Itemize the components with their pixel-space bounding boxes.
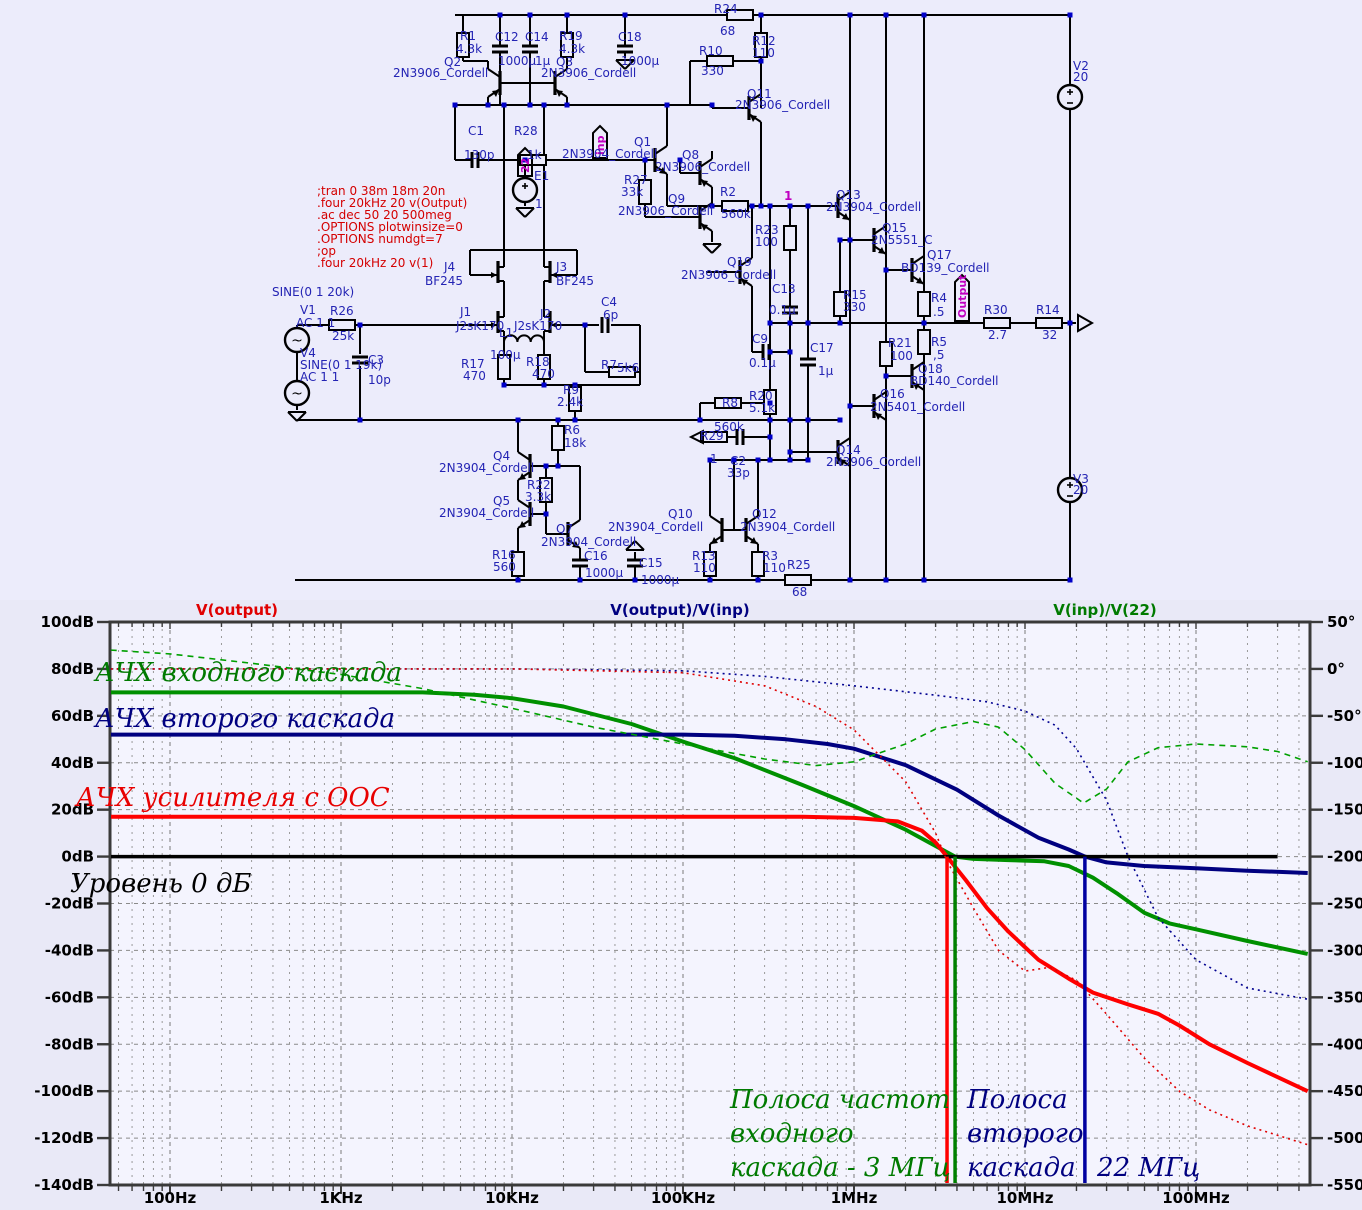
component-label: 2.7 — [988, 329, 1007, 341]
component-label: C16 — [584, 550, 608, 562]
component-label: 2N3904_Cordell — [439, 462, 534, 474]
component-label: J4 — [444, 261, 455, 273]
component-label: 20 — [1073, 484, 1088, 496]
component-label: 32 — [1042, 329, 1057, 341]
component-label: R5 — [931, 336, 947, 348]
component-label: R7 — [601, 359, 617, 371]
component-label: C4 — [601, 296, 617, 308]
component-label: R14 — [1036, 304, 1060, 316]
component-label: 2N3906_Cordell — [655, 161, 750, 173]
component-label: 100 — [890, 350, 913, 362]
component-label: C14 — [525, 31, 549, 43]
component-label: 1000µ — [498, 55, 536, 67]
component-label: AC 1 1 — [296, 317, 335, 329]
component-label: 5k6 — [617, 362, 639, 374]
component-label: 560 — [493, 561, 516, 573]
component-label: Q17 — [927, 249, 952, 261]
component-label: BF245 — [425, 275, 463, 287]
component-label: 2N3904_Cordell — [541, 536, 636, 548]
component-label: C15 — [639, 557, 663, 569]
component-label: R28 — [514, 125, 538, 137]
component-label: R25 — [787, 559, 811, 571]
component-label: 68 — [792, 586, 807, 598]
component-label: R26 — [330, 305, 354, 317]
component-label: Q10 — [668, 508, 693, 520]
component-label: 2N3904_Cordell — [826, 201, 921, 213]
component-label: C17 — [810, 342, 834, 354]
component-label: 2N5401_Cordell — [870, 401, 965, 413]
component-label: 33p — [727, 467, 750, 479]
component-label: 4.3k — [559, 43, 585, 55]
component-label: J3 — [556, 261, 567, 273]
component-label: C13 — [772, 283, 796, 295]
component-label: 2N3906_Cordell — [541, 67, 636, 79]
component-label: C18 — [618, 31, 642, 43]
component-label: E1 — [534, 170, 549, 182]
component-label: 2N3904_Cordell — [608, 521, 703, 533]
component-label: J2sK170 — [456, 320, 504, 332]
component-label: 100 — [755, 236, 778, 248]
component-label: R4 — [931, 292, 947, 304]
component-label: 110 — [693, 562, 716, 574]
component-label: 25k — [332, 330, 354, 342]
component-label: R21 — [888, 337, 912, 349]
component-label: ,5 — [933, 349, 944, 361]
component-label: 130p — [464, 149, 495, 161]
component-label: 470 — [532, 368, 555, 380]
component-label: 330 — [701, 65, 724, 77]
spice-directive: .four 20kHz 20 v(1) — [317, 257, 433, 269]
component-label: 110 — [752, 47, 775, 59]
component-label: AC 1 1 — [300, 371, 339, 383]
component-label: BF245 — [556, 275, 594, 287]
component-label: 68 — [720, 25, 735, 37]
component-label: 0.1µ — [749, 357, 776, 369]
component-label: 3.3k — [525, 491, 551, 503]
component-label: 2N3906_Cordell — [618, 205, 713, 217]
component-label: R19 — [559, 30, 583, 42]
schematic-canvas: ~~inp22Output R14.3kC121000µC141µR194.3k… — [0, 0, 1362, 600]
component-label: 18k — [564, 437, 586, 449]
component-label: J2sK170 — [514, 320, 562, 332]
component-label: 2N5551_C — [871, 234, 933, 246]
component-label: 10p — [368, 374, 391, 386]
component-label: C9 — [752, 333, 768, 345]
component-label: 560k — [721, 208, 751, 220]
component-label: Q16 — [880, 388, 905, 400]
component-label: V1 — [300, 304, 316, 316]
component-label: L1 — [499, 327, 513, 339]
component-label: 2N3906_Cordell — [681, 269, 776, 281]
component-label: R1 — [460, 30, 476, 42]
component-label: 6p — [603, 309, 618, 321]
component-label: Q7 — [556, 523, 573, 535]
component-label: 2N3904_Cordell — [740, 521, 835, 533]
component-label: 1000µ — [641, 574, 679, 586]
component-label: R24 — [714, 3, 738, 15]
component-label: 1000µ — [585, 567, 623, 579]
component-label: Q12 — [752, 508, 777, 520]
component-label: 100µ — [490, 349, 521, 361]
component-label: BD140_Cordell — [910, 375, 999, 387]
ltspice-window: ~~inp22Output R14.3kC121000µC141µR194.3k… — [0, 0, 1362, 1210]
component-label: 20 — [1073, 71, 1088, 83]
component-label: 1 — [535, 198, 543, 210]
component-label: 1k — [527, 149, 542, 161]
component-label: 2N3904_Cordell — [439, 507, 534, 519]
component-label: 33k — [621, 186, 643, 198]
component-label: 2N3906_Cordell — [826, 456, 921, 468]
waveform-plot — [0, 600, 1362, 1210]
component-label: 2N3906_Cordell — [735, 99, 830, 111]
component-label: R10 — [699, 45, 723, 57]
component-label: Q19 — [727, 256, 752, 268]
component-label: BD139_Cordell — [901, 262, 990, 274]
component-label: R6 — [564, 424, 580, 436]
component-label: R8 — [722, 397, 738, 409]
component-label: 0.1µ — [769, 304, 796, 316]
component-label: 470 — [463, 370, 486, 382]
component-label: 110 — [763, 562, 786, 574]
component-label: SINE(0 1 20k) — [272, 286, 354, 298]
schematic-labels: R14.3kC121000µC141µR194.3kC181000µQ22N39… — [0, 0, 1362, 600]
component-label: C12 — [495, 31, 519, 43]
component-label: 2N3904_Cordell — [562, 148, 657, 160]
component-label: 1 — [710, 453, 718, 465]
component-label: 5.1k — [749, 402, 775, 414]
component-label: R2 — [720, 186, 736, 198]
component-label: 330 — [843, 301, 866, 313]
component-label: 2N3906_Cordell — [393, 67, 488, 79]
component-label: 2.4k — [557, 396, 583, 408]
component-label: J1 — [460, 306, 471, 318]
component-label: C3 — [368, 354, 384, 366]
component-label: R30 — [984, 304, 1008, 316]
component-label: .5 — [933, 306, 944, 318]
component-label: 4.3k — [456, 43, 482, 55]
component-label: 1 — [784, 190, 792, 202]
component-label: R29 — [700, 430, 724, 442]
component-label: 1µ — [818, 365, 833, 377]
component-label: C1 — [468, 125, 484, 137]
